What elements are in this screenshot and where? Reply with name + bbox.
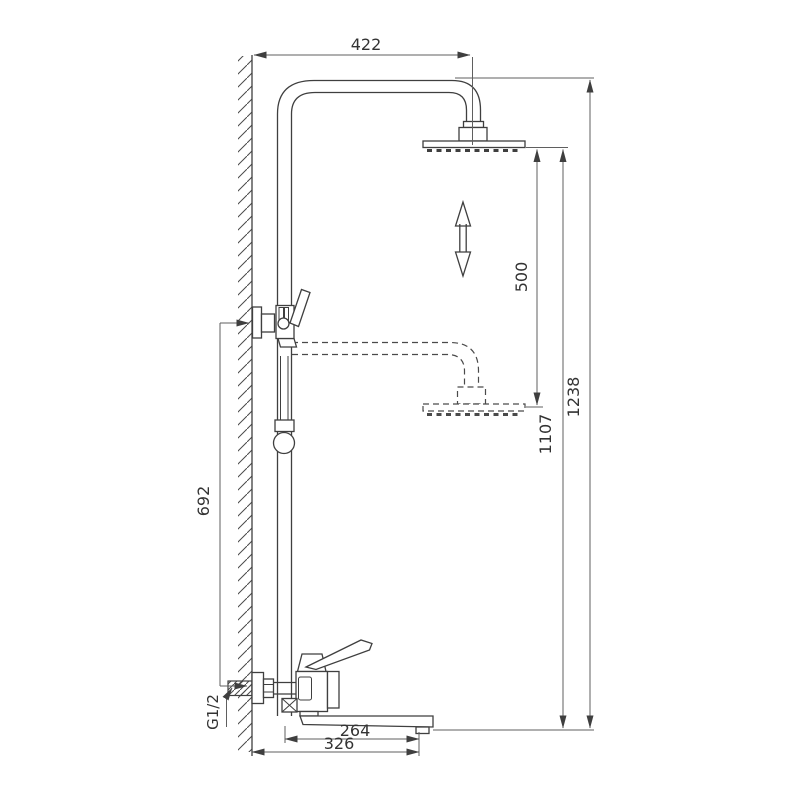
dim-label-326: 326 (324, 734, 355, 753)
slider-knob (274, 433, 295, 454)
bracket-wall-plate (253, 307, 262, 338)
dim-label-1238: 1238 (564, 377, 583, 418)
supply-hex-nut (264, 679, 274, 698)
drawing-canvas: 422 500 1107 1238 692 G1/2 264 326 (0, 0, 800, 800)
dimension-422: 422 (254, 35, 473, 145)
bracket-arm (262, 314, 275, 332)
dim-label-500: 500 (512, 262, 531, 293)
supply-wall-plate (252, 673, 264, 704)
rain-shower-head-upper (423, 122, 525, 151)
diverter-block (328, 672, 340, 709)
thread-callout: G1/2 (204, 688, 232, 730)
lower-arm-outer (292, 343, 479, 388)
dimension-1107: 1107 (536, 150, 563, 729)
head-disc (423, 141, 525, 148)
dimension-326: 326 (252, 734, 419, 753)
wall-section (238, 55, 252, 756)
thread-label: G1/2 (204, 694, 222, 730)
riser-pipe-outer (278, 81, 481, 717)
rail-end-stop (275, 420, 294, 432)
technical-drawing: 422 500 1107 1238 692 G1/2 264 326 (0, 0, 800, 800)
dimension-500: 500 (512, 148, 568, 408)
spout-aerator (416, 727, 429, 734)
lower-head-disc (423, 404, 525, 411)
shower-riser-and-arm (278, 81, 483, 717)
spout-joint (300, 712, 318, 717)
lower-arm-inner (292, 355, 465, 388)
holder-pivot (278, 318, 289, 329)
height-adjust-arrow-icon (456, 202, 471, 276)
shower-arm-lower-position (292, 343, 525, 415)
mixer-assembly (282, 640, 433, 734)
holder-lower (278, 339, 297, 348)
dim-label-422: 422 (351, 35, 382, 54)
dim-label-1107: 1107 (536, 414, 555, 455)
wall-hatch (238, 56, 252, 752)
hand-shower-assembly (253, 290, 311, 348)
head-flange (464, 122, 484, 128)
dim-label-692: 692 (194, 486, 213, 517)
lower-head-connector (458, 387, 486, 404)
